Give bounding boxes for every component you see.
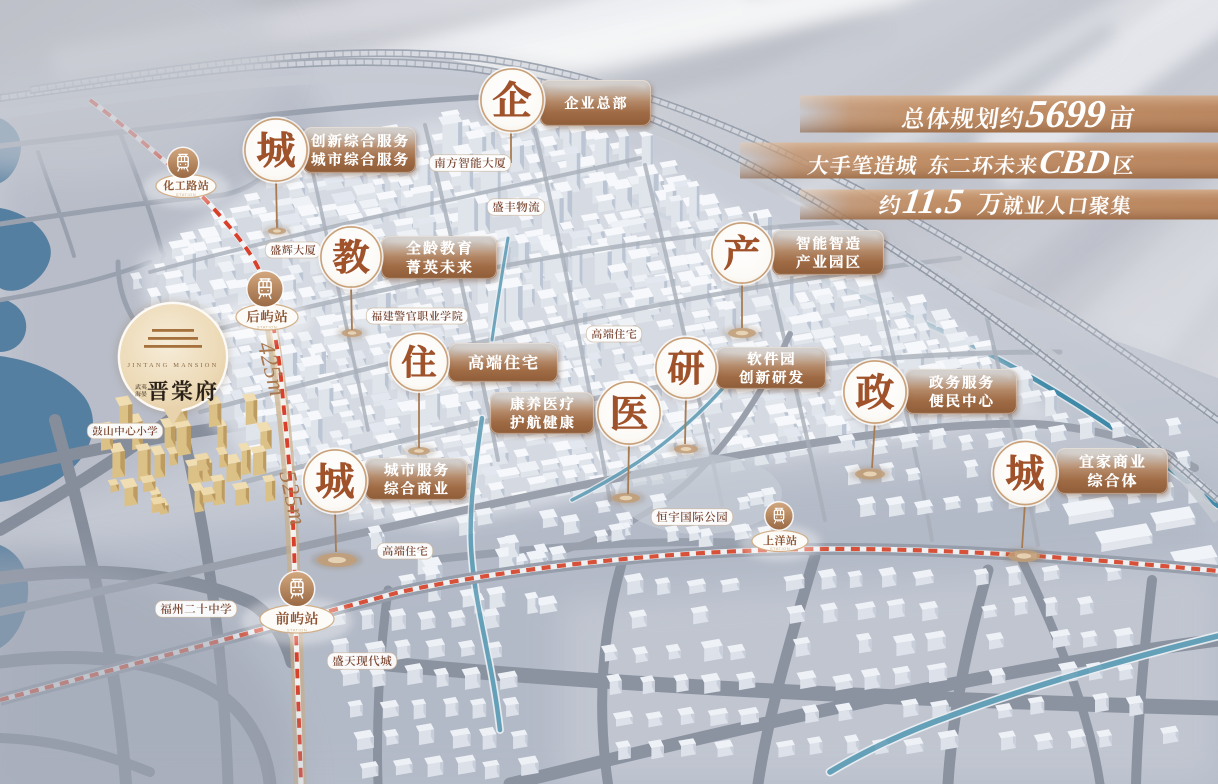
svg-text:STATION: STATION: [176, 192, 196, 197]
svg-text:JINTANG MANSION: JINTANG MANSION: [128, 362, 219, 369]
svg-text:5699: 5699: [1023, 92, 1108, 136]
svg-text:CBD: CBD: [1037, 144, 1112, 181]
svg-text:STATION: STATION: [770, 546, 790, 551]
svg-text:STATION: STATION: [257, 325, 277, 330]
svg-text:STATION: STATION: [287, 628, 307, 633]
svg-text:11.5: 11.5: [900, 181, 966, 221]
